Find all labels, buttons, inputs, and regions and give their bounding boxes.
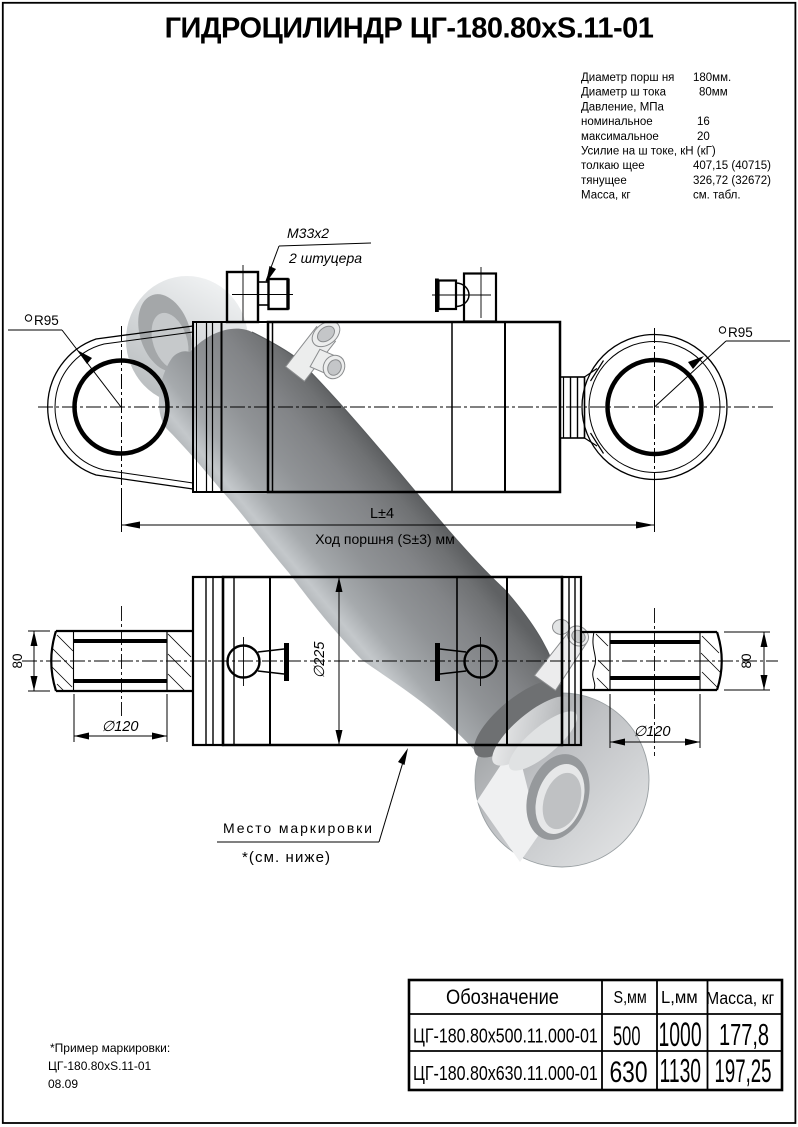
- svg-text:500: 500: [613, 1021, 640, 1051]
- svg-text:1000: 1000: [659, 1015, 702, 1053]
- svg-text:Масса, кг: Масса, кг: [706, 988, 774, 1008]
- svg-text:630: 630: [610, 1055, 648, 1089]
- svg-text:Диаметр порш ня: Диаметр порш ня: [581, 72, 674, 84]
- svg-text:∅225: ∅225: [312, 641, 328, 679]
- svg-text:180мм.: 180мм.: [693, 72, 731, 84]
- svg-text:326,72 (32672): 326,72 (32672): [693, 175, 771, 187]
- svg-text:08.09: 08.09: [48, 1077, 78, 1091]
- svg-text:407,15 (40715): 407,15 (40715): [693, 160, 771, 172]
- svg-text:см. табл.: см. табл.: [693, 190, 741, 202]
- svg-text:толкаю щее: толкаю щее: [581, 160, 645, 172]
- svg-text:Обозначение: Обозначение: [446, 986, 559, 1009]
- svg-text:Масса, кг: Масса, кг: [581, 190, 631, 202]
- svg-text:тянущее: тянущее: [581, 175, 627, 187]
- svg-text:Давление, МПа: Давление, МПа: [581, 101, 665, 113]
- svg-text:L±4: L±4: [370, 506, 394, 522]
- svg-text:ЦГ-180.80х500.11.000-01: ЦГ-180.80х500.11.000-01: [413, 1025, 598, 1047]
- svg-text:16: 16: [697, 116, 710, 128]
- svg-text:1130: 1130: [660, 1053, 702, 1090]
- svg-text:S,мм: S,мм: [614, 989, 647, 1008]
- svg-text:Ход поршня (S±3) мм: Ход поршня (S±3) мм: [315, 531, 455, 547]
- svg-text:80: 80: [10, 653, 25, 668]
- svg-text:максимальное: максимальное: [581, 131, 659, 143]
- svg-text:80мм: 80мм: [699, 87, 728, 99]
- svg-text:L,мм: L,мм: [661, 988, 698, 1007]
- svg-text:*(см. ниже): *(см. ниже): [242, 849, 330, 866]
- svg-text:ГИДРОЦИЛИНДР ЦГ-180.80хS.11-01: ГИДРОЦИЛИНДР ЦГ-180.80хS.11-01: [165, 13, 654, 45]
- svg-text:197,25: 197,25: [715, 1053, 772, 1090]
- svg-text:∅120: ∅120: [102, 719, 139, 735]
- svg-text:R95: R95: [34, 313, 59, 328]
- svg-text:20: 20: [697, 131, 710, 143]
- svg-text:∅120: ∅120: [634, 724, 671, 740]
- svg-text:Диаметр ш тока: Диаметр ш тока: [581, 87, 667, 99]
- svg-text:*Пример маркировки:: *Пример маркировки:: [50, 1041, 170, 1055]
- svg-text:ЦГ-180.80х630.11.000-01: ЦГ-180.80х630.11.000-01: [413, 1062, 598, 1084]
- svg-text:177,8: 177,8: [719, 1016, 769, 1052]
- svg-text:Усилие на ш токе, кН (кГ): Усилие на ш токе, кН (кГ): [581, 146, 716, 158]
- svg-text:R95: R95: [728, 325, 753, 340]
- svg-text:80: 80: [739, 653, 754, 668]
- svg-text:М33х2: М33х2: [287, 225, 329, 241]
- svg-text:номинальное: номинальное: [581, 116, 653, 128]
- svg-text:2 штуцера: 2 штуцера: [288, 250, 362, 266]
- svg-text:ЦГ-180.80хS.11-01: ЦГ-180.80хS.11-01: [48, 1059, 152, 1073]
